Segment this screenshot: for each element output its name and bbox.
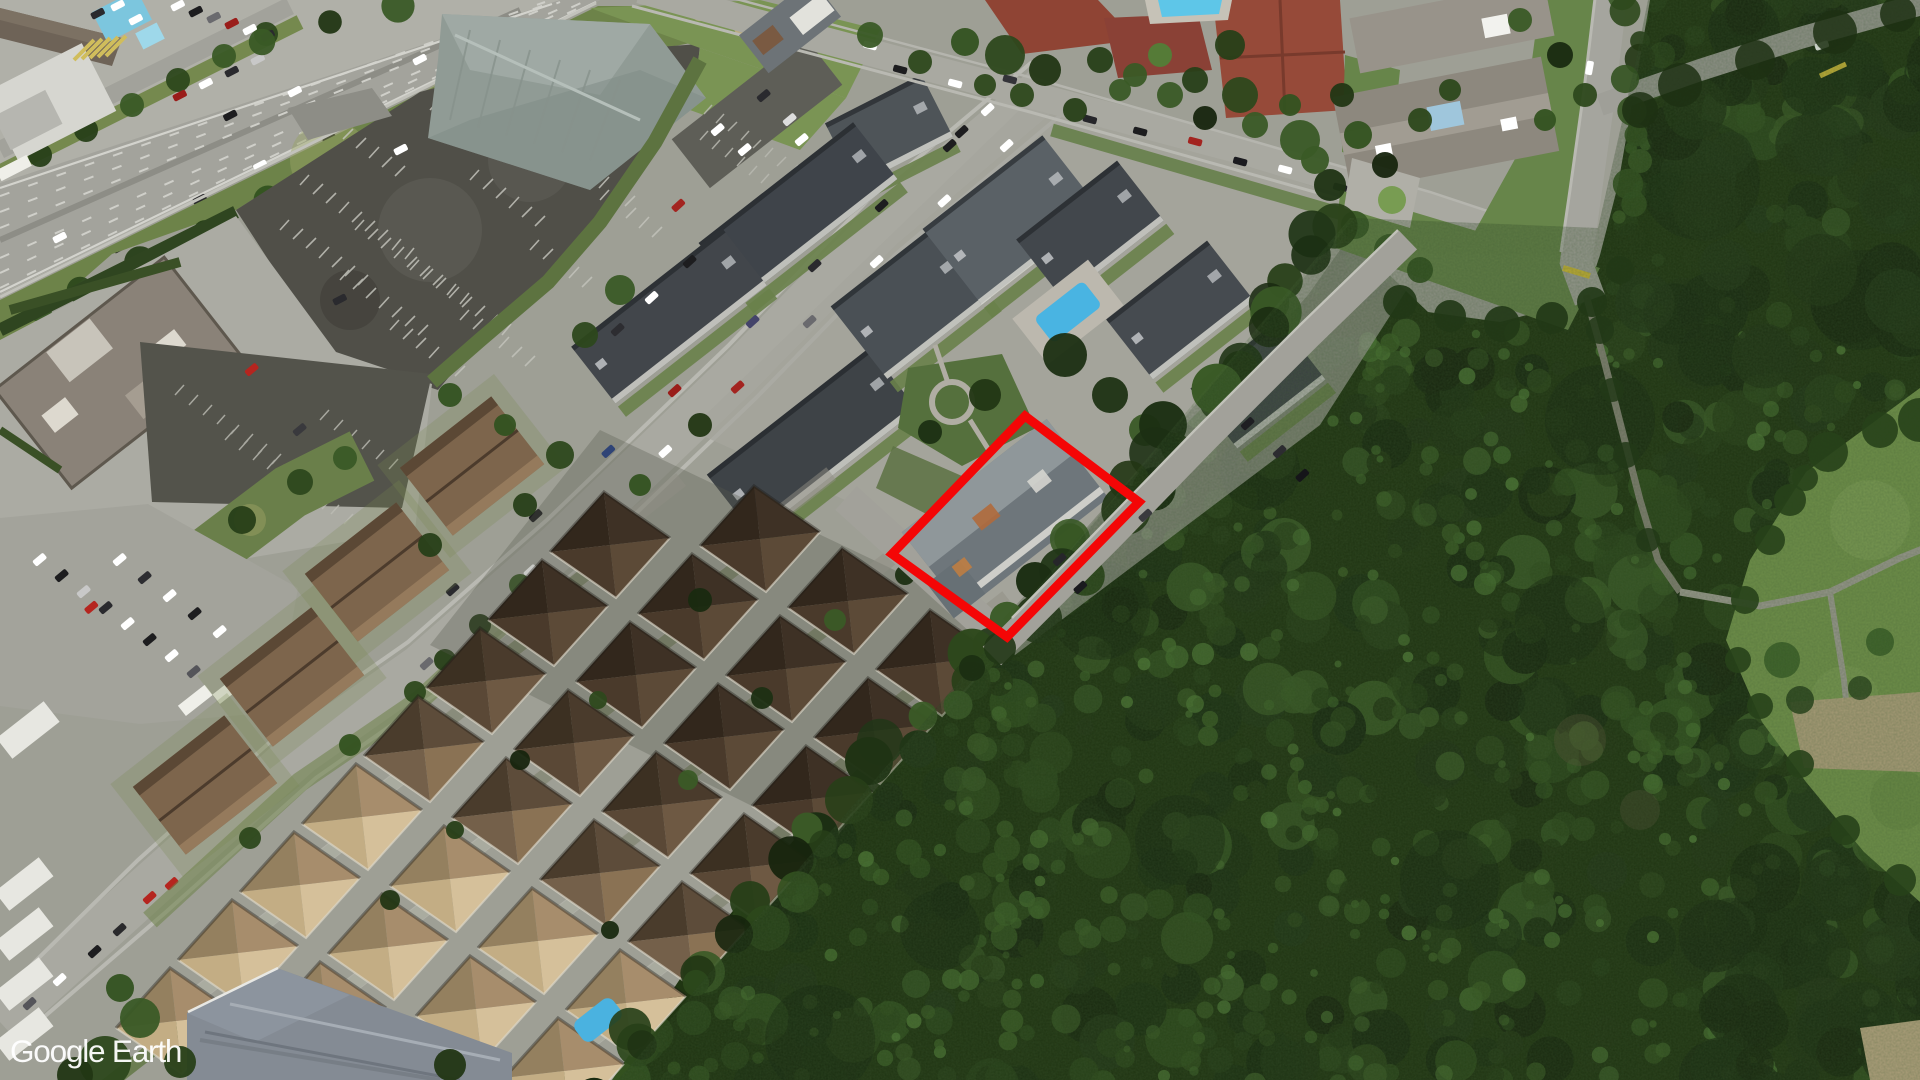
svg-text:Google Earth: Google Earth xyxy=(10,1033,181,1069)
